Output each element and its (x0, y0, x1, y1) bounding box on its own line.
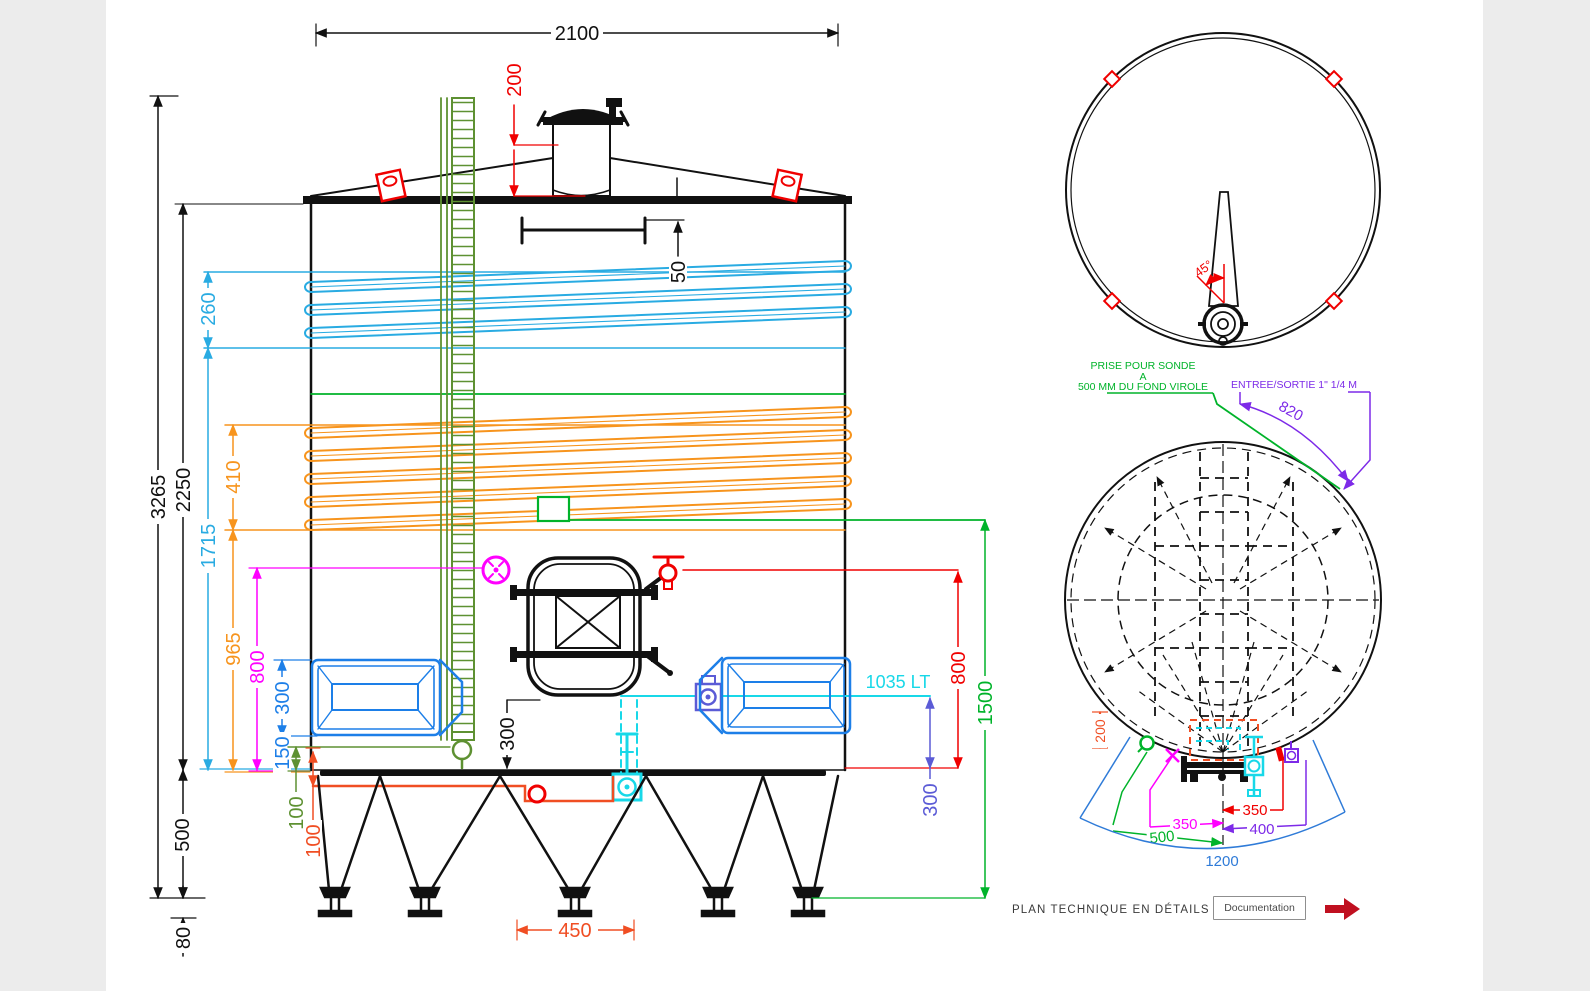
svg-text:2250: 2250 (173, 468, 195, 513)
svg-text:50: 50 (668, 261, 690, 283)
svg-text:300: 300 (497, 717, 519, 750)
top-view: 45° (1066, 33, 1380, 347)
svg-text:350: 350 (1242, 802, 1267, 819)
svg-text:3265: 3265 (148, 475, 170, 520)
svg-text:1715: 1715 (198, 524, 220, 569)
svg-text:410: 410 (223, 460, 245, 493)
technical-drawing-page: 1035 LT (0, 0, 1590, 991)
svg-text:450: 450 (558, 920, 591, 942)
dimension-door-depth: 200 (1092, 712, 1108, 748)
svg-text:200: 200 (1092, 719, 1108, 743)
svg-text:800: 800 (247, 650, 269, 683)
svg-text:300: 300 (920, 783, 942, 816)
documentation-button[interactable]: Documentation (1213, 896, 1306, 920)
svg-text:100: 100 (303, 824, 325, 857)
svg-text:400: 400 (1249, 821, 1274, 838)
green-nozzle-square (538, 497, 569, 521)
svg-text:150: 150 (272, 736, 294, 769)
thermometer-gauge-icon (483, 557, 509, 583)
volume-label: 1035 LT (866, 672, 931, 692)
lifting-lug-left (376, 170, 405, 201)
svg-text:260: 260 (198, 292, 220, 325)
svg-text:2100: 2100 (555, 23, 600, 45)
svg-text:500 MM DU FOND VIROLE: 500 MM DU FOND VIROLE (1078, 381, 1208, 393)
svg-text:300: 300 (272, 681, 294, 714)
svg-text:200: 200 (504, 63, 526, 96)
svg-text:965: 965 (223, 632, 245, 665)
technical-drawing-canvas: 1035 LT (0, 0, 1590, 991)
svg-text:800: 800 (948, 651, 970, 684)
svg-text:1200: 1200 (1205, 853, 1238, 870)
lifting-lug-right (773, 170, 802, 201)
drain-port-icon (529, 786, 545, 802)
svg-text:1500: 1500 (975, 681, 997, 726)
svg-text:ENTREE/SORTIE 1" 1/4 M: ENTREE/SORTIE 1" 1/4 M (1231, 379, 1357, 391)
svg-text:80: 80 (173, 927, 195, 949)
svg-text:500: 500 (172, 818, 194, 851)
